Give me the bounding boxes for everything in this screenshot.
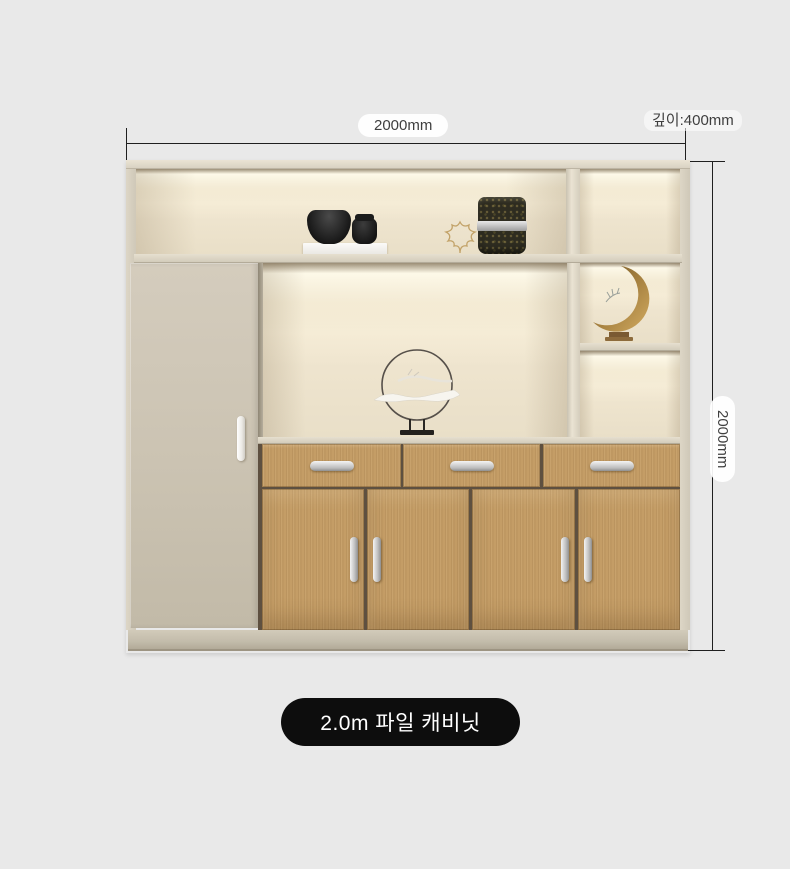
ring-branch-sculpture: [372, 345, 462, 437]
drawer-handle: [450, 461, 494, 471]
depth-dimension-label: 깊이:400mm: [644, 110, 742, 131]
height-dimension-label: 2000mm: [710, 396, 735, 482]
width-dimension-label: 2000mm: [358, 114, 448, 137]
door-handle: [373, 537, 381, 582]
door-handle: [584, 537, 592, 582]
shelf-board: [134, 254, 682, 263]
cabinet-top-band: [126, 160, 690, 169]
counter-edge: [258, 437, 680, 444]
crescent-moon-ornament: [586, 264, 652, 343]
right-column-divider: [567, 263, 580, 437]
canister-band: [477, 221, 527, 231]
drawer-center: [403, 444, 540, 487]
right-shelf-board: [580, 343, 680, 351]
top-shelf-divider: [566, 169, 580, 254]
lower-door-1: [262, 489, 364, 630]
width-dimension-line: [126, 143, 686, 144]
base-unit: [258, 444, 680, 630]
gold-leaf-ornament: [442, 220, 479, 254]
cabinet-image: [126, 160, 690, 653]
drawer-handle: [310, 461, 354, 471]
cabinet-right-frame: [680, 169, 690, 630]
door-handle: [561, 537, 569, 582]
textured-canister: [478, 197, 526, 254]
width-dimension-tick-right: [685, 128, 686, 161]
right-top-compartment: [580, 169, 680, 254]
drawer-right: [543, 444, 680, 487]
plinth: [128, 630, 688, 651]
drawer-handle: [590, 461, 634, 471]
product-page: 2000mm 깊이:400mm 2000mm: [0, 0, 790, 869]
black-jar: [352, 218, 377, 244]
left-cabinet-door: [130, 263, 258, 628]
height-dimension-tick-bottom: [688, 650, 725, 651]
height-dimension-tick-top: [688, 161, 725, 162]
lower-door-2: [367, 489, 469, 630]
left-door-handle: [237, 416, 245, 461]
lower-door-4: [578, 489, 680, 630]
product-label-pill: 2.0m 파일 캐비닛: [281, 698, 520, 746]
lower-door-3: [472, 489, 575, 630]
right-lower-compartment: [580, 351, 680, 437]
width-dimension-tick-left: [126, 128, 127, 160]
drawer-left: [262, 444, 401, 487]
door-handle: [350, 537, 358, 582]
